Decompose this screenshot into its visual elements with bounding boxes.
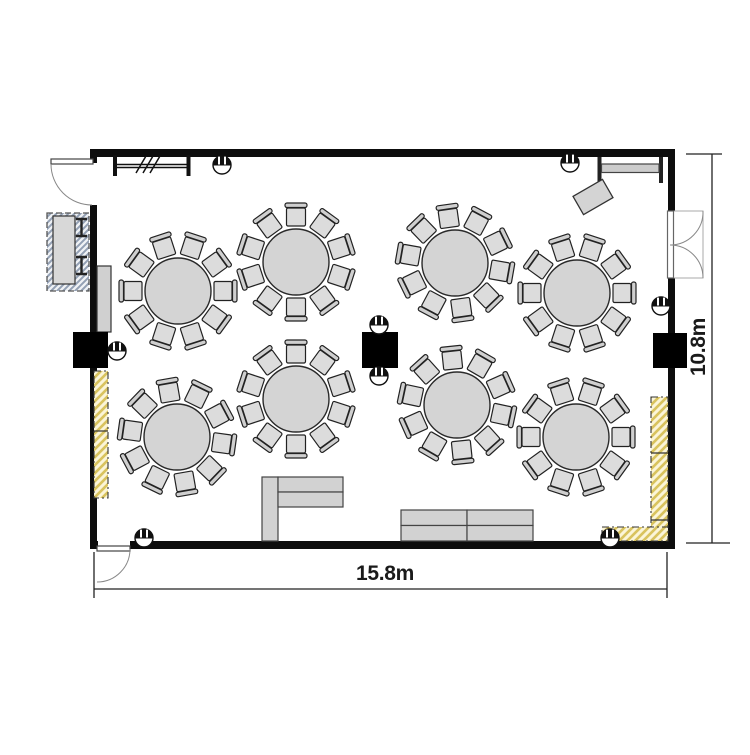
banquet-table-group <box>119 231 237 350</box>
chair <box>327 370 356 398</box>
banquet-table-group <box>397 345 517 465</box>
chair <box>236 233 265 261</box>
chair-seat <box>287 435 306 453</box>
chair-back <box>632 282 637 304</box>
height-dimension-label: 10.8m <box>687 287 711 407</box>
l-sofa-segment <box>278 477 343 492</box>
wall-fixture-symbol <box>370 316 388 334</box>
structural-column <box>653 333 687 368</box>
banquet-table-group <box>518 233 636 352</box>
chair-seat <box>613 284 631 303</box>
chair-seat <box>489 260 510 282</box>
chair <box>440 345 464 370</box>
chair-seat <box>211 433 231 454</box>
chair <box>149 322 177 351</box>
chair <box>578 324 606 353</box>
chair-seat <box>523 284 541 303</box>
round-table <box>263 366 329 432</box>
chair-seat <box>451 440 472 460</box>
chair <box>179 231 207 260</box>
double-sofa-segment <box>467 510 533 526</box>
wall-fixture-symbol <box>213 156 231 174</box>
chair <box>119 280 142 302</box>
wall-segment <box>90 149 675 157</box>
partition-symbol-endbar <box>187 155 191 176</box>
wall-fixture-symbol <box>108 342 126 360</box>
l-sofa-segment <box>262 477 278 541</box>
round-table <box>544 260 610 326</box>
chair <box>179 322 207 351</box>
chair <box>397 269 427 299</box>
chair-seat <box>287 345 306 363</box>
wall-fixture-symbol <box>601 529 619 547</box>
entry-door-swing <box>51 164 92 205</box>
chair <box>285 298 307 321</box>
round-table <box>145 258 211 324</box>
chair <box>613 282 636 304</box>
double-sofa-segment <box>401 526 467 542</box>
chair <box>518 282 541 304</box>
chair-back <box>285 317 307 322</box>
chair-seat <box>522 428 540 447</box>
chair <box>548 233 576 262</box>
chair <box>327 400 356 428</box>
banquet-table-group <box>395 203 515 323</box>
angled-side-table <box>573 179 613 214</box>
chair <box>483 227 513 257</box>
chair <box>285 435 307 458</box>
floor-plan-svg <box>0 0 750 750</box>
chair <box>577 377 605 406</box>
chair <box>397 382 424 408</box>
round-table <box>263 229 329 295</box>
chair-seat <box>214 282 232 301</box>
chair-seat <box>174 471 196 492</box>
chair-seat <box>438 208 459 228</box>
wall-fixture-symbol <box>561 154 579 172</box>
chair <box>236 400 265 428</box>
service-unit-body <box>53 216 75 284</box>
chair <box>285 203 307 226</box>
chair <box>117 418 143 443</box>
chair-back <box>119 280 124 302</box>
beam-symbol-band <box>602 164 660 173</box>
chair <box>577 468 605 497</box>
chair-back <box>285 454 307 459</box>
banquet-table-group <box>236 340 355 458</box>
chair <box>149 231 177 260</box>
chair <box>211 431 237 456</box>
wall-fixture-symbol <box>652 297 670 315</box>
exit-door-leaf <box>97 546 130 551</box>
chair-seat <box>451 297 472 317</box>
structural-column <box>362 332 398 368</box>
wall-segment <box>668 278 675 549</box>
chair <box>450 440 474 465</box>
chair <box>548 324 576 353</box>
chair <box>183 379 213 409</box>
chair-seat <box>287 208 306 226</box>
floor-plan: 15.8m 10.8m <box>0 0 750 750</box>
chair-seat <box>124 282 142 301</box>
chair-back <box>233 280 238 302</box>
chair <box>578 233 606 262</box>
banquet-table-group <box>236 203 355 321</box>
wall-segment <box>668 149 675 211</box>
chair-seat <box>122 420 142 441</box>
chair <box>236 370 265 398</box>
chair <box>547 468 575 497</box>
banquet-table-group <box>517 377 635 496</box>
curtain-strip-left <box>94 371 108 498</box>
chair <box>485 371 515 400</box>
chair <box>156 377 182 403</box>
chair <box>327 263 356 291</box>
chair-back <box>285 340 307 345</box>
chair-back <box>518 282 523 304</box>
round-table <box>424 372 490 438</box>
partition-symbol-lines <box>115 165 189 168</box>
double-sofa-segment <box>401 510 467 526</box>
banquet-table-group <box>117 377 237 497</box>
chair <box>612 426 635 448</box>
exit-door-swing <box>97 549 130 582</box>
structural-column <box>73 332 108 368</box>
chair-back <box>285 203 307 208</box>
chair <box>236 263 265 291</box>
chair-seat <box>612 428 630 447</box>
chair <box>547 377 575 406</box>
chair-seat <box>287 298 306 316</box>
round-table <box>422 230 488 296</box>
wall-segment <box>130 541 675 549</box>
chair <box>489 258 515 284</box>
chair <box>436 203 461 229</box>
width-dimension-label: 15.8m <box>325 562 445 586</box>
entry-door-leaf <box>51 159 93 164</box>
double-sofa-segment <box>467 526 533 542</box>
chair <box>141 465 171 495</box>
wall-fixture-symbol <box>370 367 388 385</box>
chair <box>395 242 421 268</box>
l-sofa-segment <box>278 492 343 507</box>
buffet-counter <box>97 266 111 332</box>
chair-back <box>517 426 522 448</box>
round-table <box>543 404 609 470</box>
chair-seat <box>158 382 180 403</box>
chair <box>327 233 356 261</box>
chair <box>214 280 237 302</box>
chair <box>517 426 540 448</box>
chair <box>399 410 429 439</box>
partition-symbol-endbar <box>113 155 117 176</box>
chair <box>285 340 307 363</box>
chair <box>172 471 198 497</box>
chair-seat <box>442 350 463 370</box>
chair-back <box>631 426 636 448</box>
chair <box>490 402 517 428</box>
floor-plan-canvas <box>0 0 750 750</box>
chair-seat <box>400 244 421 266</box>
round-table <box>144 404 210 470</box>
curtain-strip-right <box>651 397 668 533</box>
wall-fixture-symbol <box>135 529 153 547</box>
chair <box>449 297 474 323</box>
